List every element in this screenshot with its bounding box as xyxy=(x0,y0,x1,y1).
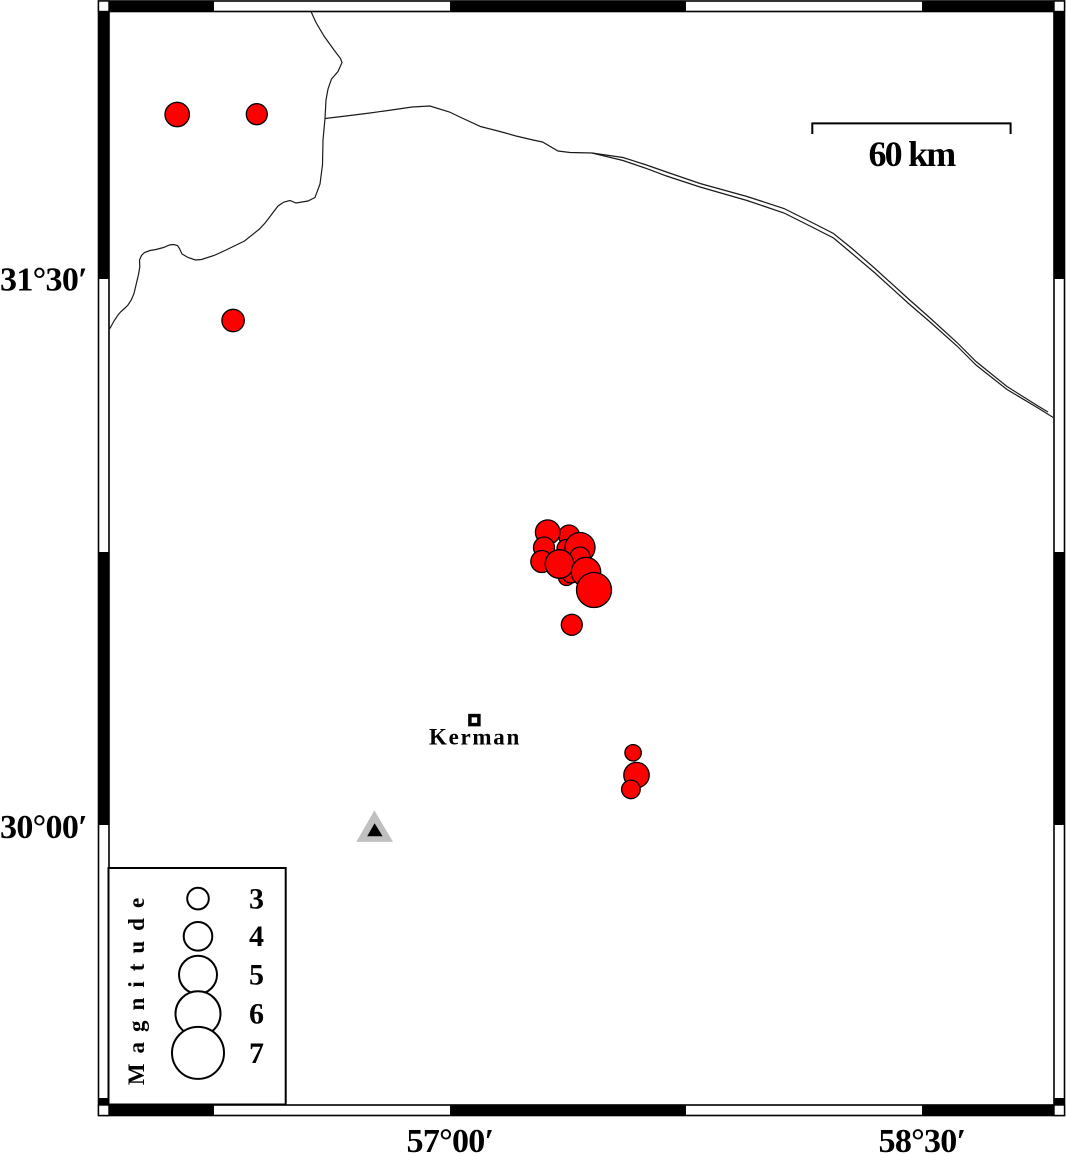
svg-text:57°00′: 57°00′ xyxy=(407,1123,494,1154)
svg-text:60 km: 60 km xyxy=(868,134,956,174)
svg-text:6: 6 xyxy=(249,998,264,1031)
svg-text:58°30′: 58°30′ xyxy=(879,1123,966,1154)
svg-text:31°30′: 31°30′ xyxy=(0,262,87,299)
svg-text:7: 7 xyxy=(249,1037,264,1070)
svg-text:5: 5 xyxy=(249,959,264,992)
svg-text:Kerman: Kerman xyxy=(429,725,521,750)
svg-text:4: 4 xyxy=(249,920,264,953)
svg-text:3: 3 xyxy=(249,883,264,916)
svg-text:30°00′: 30°00′ xyxy=(0,809,87,846)
svg-text:Magnitude: Magnitude xyxy=(124,888,149,1085)
